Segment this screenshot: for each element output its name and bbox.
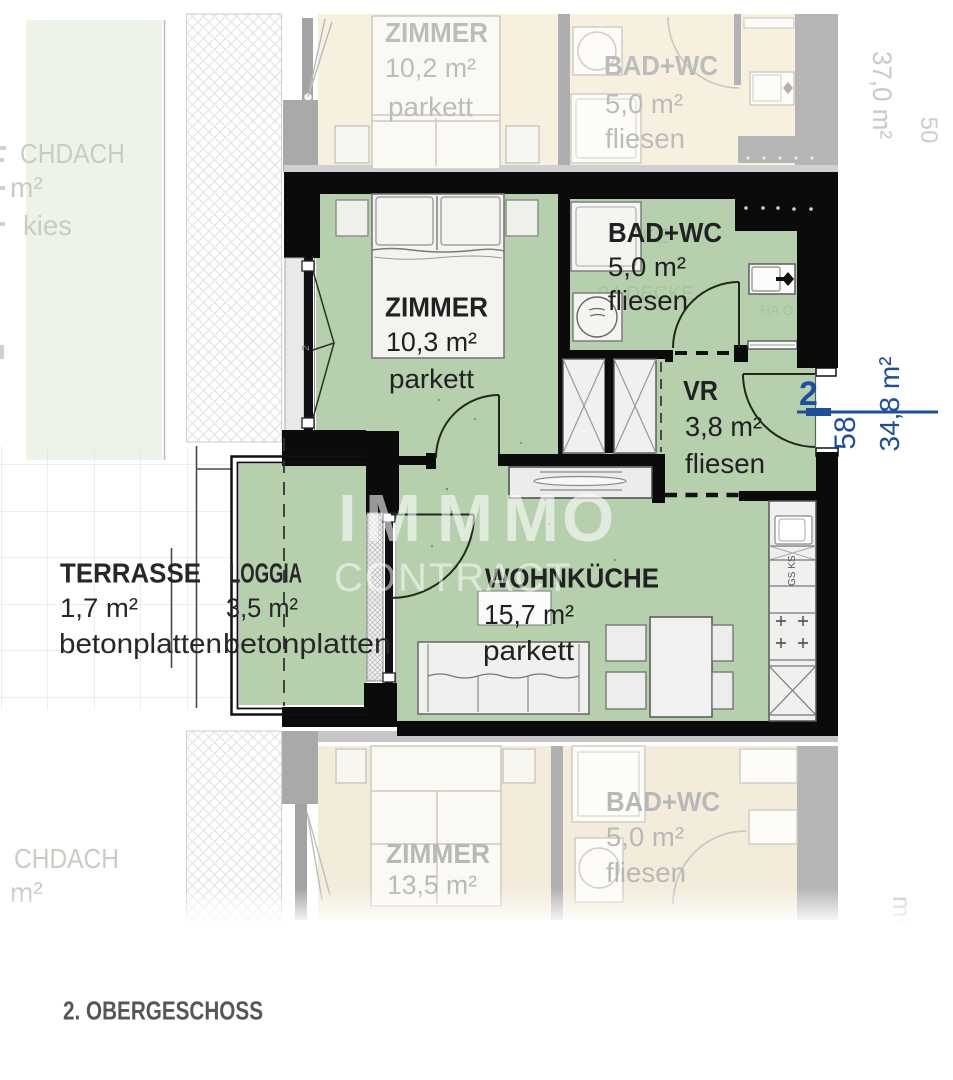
- svg-text:M: M: [365, 481, 421, 556]
- svg-text:BAD+WC: BAD+WC: [608, 217, 722, 248]
- svg-text:LOGGIA: LOGGIA: [229, 558, 302, 589]
- svg-text:10,3 m²: 10,3 m²: [386, 327, 477, 357]
- svg-text:GS KS: GS KS: [787, 555, 798, 586]
- svg-text:1,7 m²: 1,7 m²: [60, 593, 138, 623]
- svg-text:TERRASSE: TERRASSE: [60, 558, 201, 589]
- svg-text:CHDACH: CHDACH: [20, 138, 125, 169]
- svg-text:3,8 m²: 3,8 m²: [685, 411, 762, 442]
- svg-text:m²: m²: [10, 172, 43, 203]
- svg-text:fliesen: fliesen: [606, 857, 686, 888]
- svg-text:CHDACH: CHDACH: [14, 843, 119, 874]
- svg-text:37,0 m²: 37,0 m²: [867, 51, 897, 139]
- svg-text:fliesen: fliesen: [605, 123, 685, 154]
- svg-text:parkett: parkett: [389, 364, 475, 394]
- svg-text:10,2 m²: 10,2 m²: [385, 53, 476, 83]
- svg-text:parkett: parkett: [388, 92, 474, 122]
- svg-text:50: 50: [915, 117, 942, 144]
- svg-text:parkett: parkett: [483, 635, 574, 666]
- svg-text:5,0 m²: 5,0 m²: [608, 252, 686, 282]
- svg-text:ZIMMER: ZIMMER: [385, 17, 488, 48]
- svg-text:betonplatten: betonplatten: [223, 628, 391, 659]
- svg-text:2. OBERGESCHOSS: 2. OBERGESCHOSS: [63, 996, 263, 1026]
- svg-text:3,5 m²: 3,5 m²: [226, 593, 298, 623]
- svg-text:15,7 m²: 15,7 m²: [484, 599, 574, 630]
- svg-text:5,0 m²: 5,0 m²: [605, 89, 683, 119]
- svg-text:BAD+WC: BAD+WC: [604, 50, 718, 81]
- svg-text:CONTRACT: CONTRACT: [334, 556, 570, 600]
- svg-text:34,8 m²: 34,8 m²: [874, 357, 905, 452]
- svg-text:M: M: [503, 481, 559, 556]
- svg-text:fliesen: fliesen: [685, 448, 765, 479]
- svg-text:M: M: [437, 481, 493, 556]
- svg-text:HA O: HA O: [760, 302, 794, 318]
- svg-text:I: I: [338, 481, 357, 556]
- svg-text:kies: kies: [23, 210, 72, 241]
- svg-text:2: 2: [799, 375, 818, 413]
- svg-text:5,0 m²: 5,0 m²: [606, 822, 684, 852]
- svg-text:2: 2: [301, 345, 312, 351]
- svg-text:VR: VR: [683, 375, 718, 406]
- svg-text:fliesen: fliesen: [608, 285, 688, 316]
- svg-text:betonplatten: betonplatten: [59, 628, 222, 659]
- svg-text:BAD+WC: BAD+WC: [606, 786, 720, 817]
- svg-text:ZIMMER: ZIMMER: [386, 838, 490, 869]
- svg-text:58: 58: [829, 416, 862, 449]
- svg-text:O: O: [562, 481, 614, 556]
- svg-text:ZIMMER: ZIMMER: [385, 292, 488, 323]
